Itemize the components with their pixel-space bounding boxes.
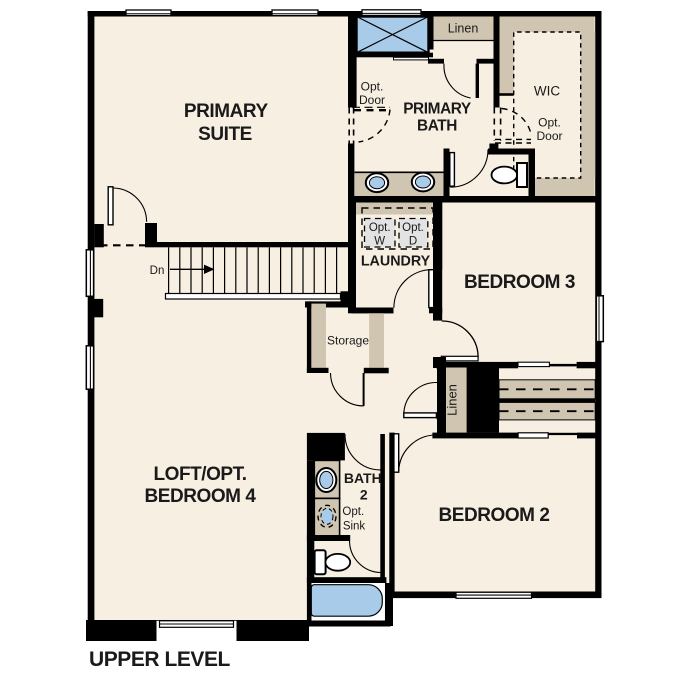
svg-text:Storage: Storage bbox=[327, 334, 369, 348]
svg-text:Door: Door bbox=[359, 93, 385, 107]
svg-text:BEDROOM 4: BEDROOM 4 bbox=[144, 486, 256, 507]
svg-text:Sink: Sink bbox=[343, 521, 366, 533]
svg-text:Linen: Linen bbox=[445, 384, 460, 416]
svg-text:BEDROOM 2: BEDROOM 2 bbox=[438, 505, 549, 526]
svg-text:W: W bbox=[374, 236, 385, 248]
svg-text:PRIMARY: PRIMARY bbox=[184, 101, 269, 122]
svg-text:Opt.: Opt. bbox=[361, 80, 384, 94]
svg-text:BATH: BATH bbox=[417, 118, 457, 135]
svg-text:WIC: WIC bbox=[534, 84, 560, 99]
svg-text:LOFT/OPT.: LOFT/OPT. bbox=[153, 464, 246, 485]
svg-text:BEDROOM 3: BEDROOM 3 bbox=[464, 272, 575, 293]
svg-text:SUITE: SUITE bbox=[198, 124, 252, 145]
svg-text:2: 2 bbox=[360, 487, 368, 503]
svg-text:BATH: BATH bbox=[344, 470, 382, 486]
svg-text:Opt.: Opt. bbox=[342, 506, 364, 518]
svg-text:Opt.: Opt. bbox=[538, 116, 561, 130]
svg-text:UPPER LEVEL: UPPER LEVEL bbox=[89, 648, 231, 671]
svg-text:D: D bbox=[409, 236, 417, 248]
svg-text:Opt.: Opt. bbox=[402, 222, 424, 234]
svg-text:Dn: Dn bbox=[150, 265, 165, 277]
svg-text:Door: Door bbox=[536, 129, 562, 143]
svg-text:PRIMARY: PRIMARY bbox=[403, 101, 472, 118]
svg-text:Opt.: Opt. bbox=[369, 222, 391, 234]
svg-text:Linen: Linen bbox=[448, 22, 479, 36]
svg-text:LAUNDRY: LAUNDRY bbox=[361, 254, 431, 270]
